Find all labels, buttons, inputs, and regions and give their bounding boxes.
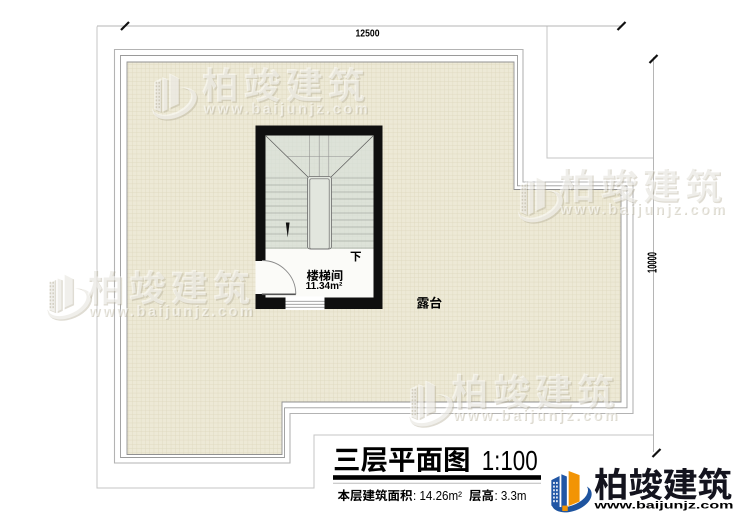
svg-text:www.baijunjz.com: www.baijunjz.com (452, 408, 620, 424)
svg-text:www.baijunjz.com: www.baijunjz.com (559, 202, 727, 218)
svg-text:12500: 12500 (356, 28, 380, 40)
svg-text:1:100: 1:100 (482, 445, 538, 476)
svg-text:: 3.3m: : 3.3m (495, 489, 527, 503)
svg-text:www.baijunjz.com: www.baijunjz.com (203, 102, 371, 118)
svg-text:www.baijunjz.com: www.baijunjz.com (593, 501, 734, 512)
svg-text:www.baijunjz.com: www.baijunjz.com (88, 304, 256, 320)
svg-text:11.34m²: 11.34m² (306, 281, 343, 292)
svg-text:10000: 10000 (645, 252, 659, 273)
svg-text:: 14.26m²: : 14.26m² (413, 489, 462, 503)
